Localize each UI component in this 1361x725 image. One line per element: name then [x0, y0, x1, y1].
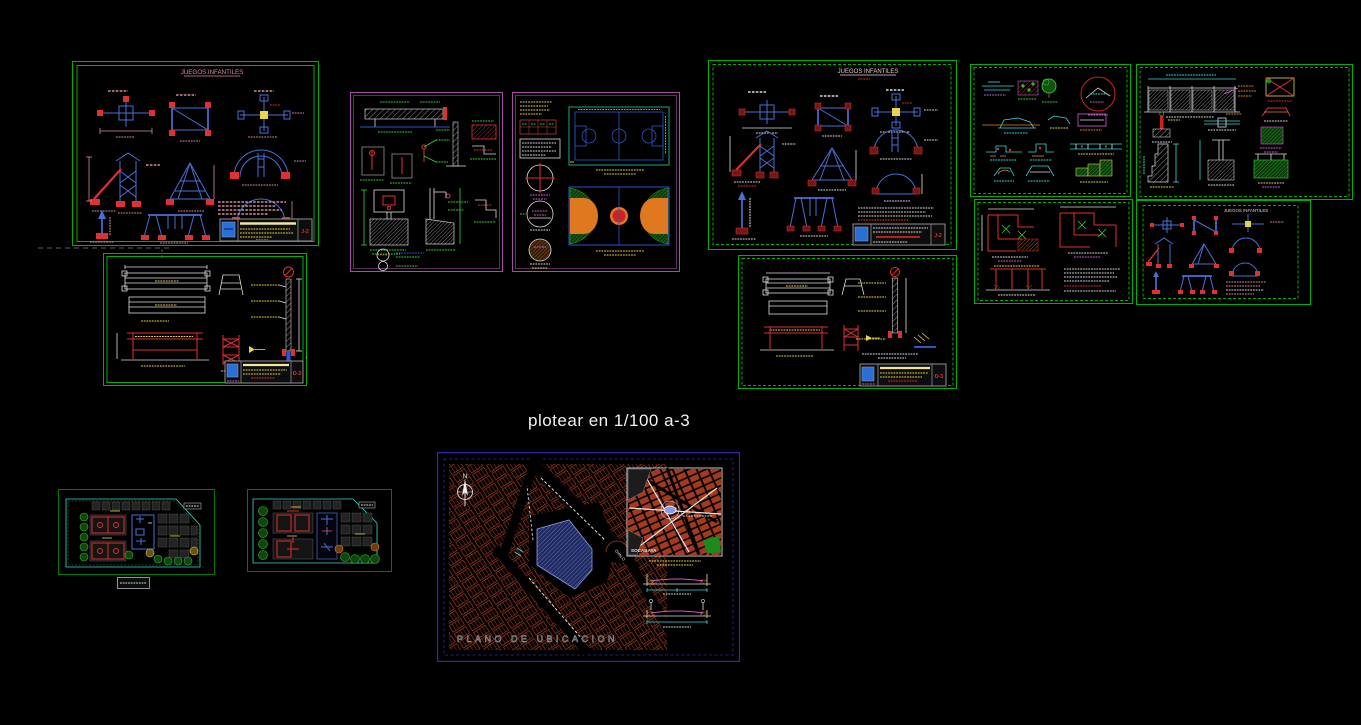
- title-block-logo: [227, 364, 238, 377]
- carousel-elevation-drawing: [872, 90, 938, 132]
- bench-top-view-drawing: [122, 265, 243, 321]
- sheet-site-plan-1[interactable]: [58, 489, 215, 575]
- curb-section-a: [986, 146, 1022, 160]
- legend-table: [520, 120, 556, 134]
- carousel-elevation-drawing: [238, 91, 304, 137]
- pipe-joint-drawing: [1204, 114, 1242, 130]
- cad-model-space[interactable]: JUEGOS INFANTILES: [0, 0, 1361, 725]
- playground-zone: [132, 515, 154, 549]
- green-panel-drawing: [1260, 127, 1283, 152]
- red-circle-detail: [1081, 77, 1115, 115]
- pergola-elevation: [986, 266, 1050, 295]
- pole-drawing: [90, 210, 114, 242]
- curb-mini-detail: [982, 82, 1014, 95]
- sheet-code: J-2: [934, 233, 942, 239]
- plan-title: PLANO DE UBICACION: [457, 634, 618, 644]
- notes-block: [1064, 269, 1120, 291]
- fence-elevation-drawing: [1144, 75, 1256, 117]
- playground-zone: [317, 513, 337, 559]
- pedestal-drawing: [1200, 140, 1234, 185]
- pergola-plan-b: [1060, 207, 1116, 257]
- sheet-border: [73, 62, 319, 246]
- sport-courts: [273, 511, 313, 559]
- sheet-juegos-mini[interactable]: JUEGOS INFANTILES: [1136, 200, 1311, 305]
- title-block: D-3: [225, 361, 303, 383]
- site-plan-caption-box: [117, 577, 150, 589]
- hatched-post-drawing: [436, 122, 466, 166]
- sheet-title: JUEGOS INFANTILES: [1224, 208, 1268, 213]
- swing-elevation-drawing: [787, 198, 841, 236]
- bench-top-view-drawing: [763, 273, 864, 314]
- inset-district-label: SOCABAYA: [631, 548, 657, 553]
- location-inset-map: SOCABAYA: [627, 468, 722, 556]
- inset-park-marker: [664, 506, 676, 514]
- post-base-boxes: [360, 147, 412, 183]
- gate-detail-drawing: [1266, 78, 1294, 101]
- sidewalk-section: [1070, 144, 1122, 154]
- backboard-front-drawing: [361, 190, 408, 254]
- pipe-section-circles: [377, 249, 424, 271]
- sheet-code: D-3: [293, 371, 301, 377]
- ladder-detail-drawing: [844, 325, 880, 351]
- sheet-site-plan-2[interactable]: [247, 489, 392, 572]
- detail-circle-crosshair: [525, 163, 555, 199]
- detail-circle-ground: [529, 239, 551, 268]
- sheet-bench-left[interactable]: D-3: [103, 253, 307, 386]
- roundabout: OVALO: [606, 541, 628, 563]
- swing-elevation-drawing: [141, 215, 210, 243]
- curb-section-b: [1028, 144, 1054, 160]
- backboard-side-drawing: [426, 188, 468, 250]
- flowerbed-detail: [1018, 81, 1038, 99]
- title-block: D-3: [860, 364, 946, 386]
- sheet-title: JUEGOS INFANTILES: [181, 69, 244, 76]
- notes-yellow-block: [520, 102, 552, 114]
- sheet-courts[interactable]: [512, 92, 680, 272]
- pyramid-climber-drawing: [166, 163, 214, 211]
- curb-ramp-detail: [994, 166, 1054, 181]
- sheet-code: D-3: [935, 374, 943, 380]
- plot-note-text: plotear en 1/100 a-3: [528, 411, 690, 431]
- sheet-details-magenta-left[interactable]: [350, 92, 503, 272]
- bench-profile-drawing: [1262, 108, 1290, 121]
- pyramid-climber-drawing: [808, 148, 856, 190]
- bracket-detail-drawing: [474, 200, 496, 222]
- title-block: J-2: [853, 224, 945, 245]
- swing-plan-drawing: [815, 96, 851, 136]
- red-plate-details: [470, 121, 496, 159]
- carousel-plan-drawing: [739, 92, 795, 133]
- sheet-bench-right[interactable]: D-3: [738, 255, 957, 389]
- sheet-juegos-right[interactable]: JUEGOS INFANTILES: [708, 60, 957, 250]
- bench-elevation-drawing: [760, 327, 834, 356]
- arch-climber-drawing: [870, 130, 938, 159]
- green-box-drawing: [1254, 154, 1288, 187]
- compass-n-label: N: [463, 473, 468, 480]
- arch-climber-drawing: [230, 150, 306, 185]
- sheet-code: J-2: [301, 229, 309, 235]
- beam-detail-drawing: [360, 102, 450, 132]
- dome-climber-drawing: [872, 174, 922, 201]
- planter-profile-detail: [982, 114, 1106, 133]
- pole-drawing: [732, 191, 756, 239]
- slide-tower-drawing: [730, 131, 796, 186]
- sheet-juegos-left[interactable]: JUEGOS INFANTILES: [72, 61, 319, 246]
- stepped-ramp-detail: [1076, 160, 1112, 182]
- carousel-plan-drawing: [97, 91, 155, 137]
- sheet-urban-details-2[interactable]: [1136, 64, 1353, 200]
- retaining-wall-drawing: [1144, 144, 1179, 187]
- title-block-logo: [855, 227, 868, 241]
- sheet-ubicacion[interactable]: OVALO N SOCABAYA: [437, 452, 740, 662]
- mini-drawings: [1146, 214, 1284, 294]
- sheet-title: JUEGOS INFANTILES: [838, 69, 899, 75]
- court-painted-plan: [569, 187, 669, 255]
- anchor-detail-drawing: [422, 140, 450, 162]
- sheet-urban-details-1[interactable]: [970, 64, 1131, 197]
- tree-symbol: [1042, 79, 1058, 102]
- detail-circle-plaza: [520, 201, 553, 230]
- notes-white-box: [520, 139, 560, 158]
- pergola-plan-a: [982, 209, 1038, 261]
- post-detail-drawing: [856, 268, 936, 359]
- title-block-logo: [862, 367, 874, 381]
- notes-text-block: [858, 208, 934, 220]
- court-lines-plan: [569, 107, 669, 174]
- arrow-marker: [249, 346, 255, 353]
- sheet-pergola-plans[interactable]: [974, 199, 1133, 304]
- slide-tower-drawing: [86, 153, 160, 213]
- bench-elevation-drawing: [117, 333, 209, 366]
- title-block: J-2: [220, 219, 312, 241]
- swing-plan-drawing: [169, 95, 211, 141]
